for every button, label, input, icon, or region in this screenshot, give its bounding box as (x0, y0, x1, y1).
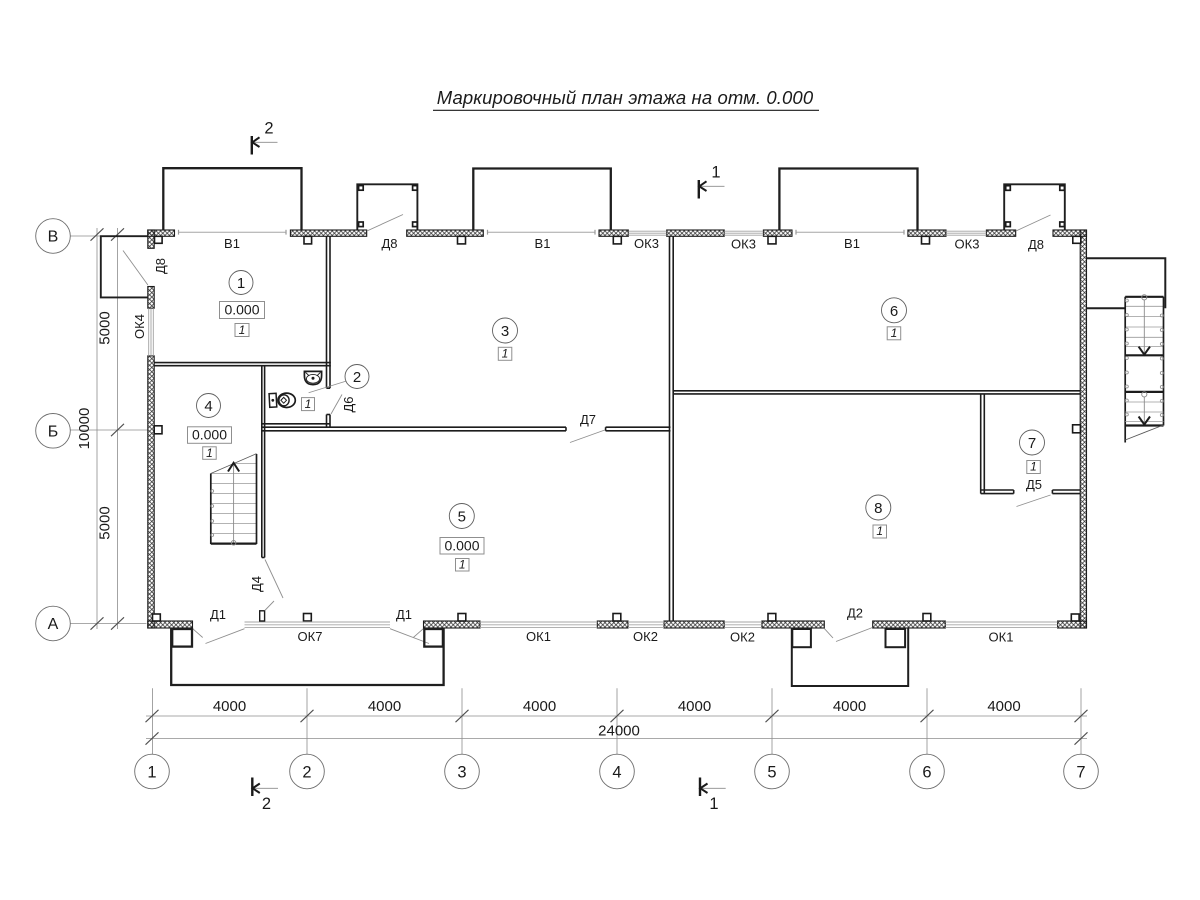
svg-text:7: 7 (1076, 763, 1085, 781)
svg-text:1: 1 (876, 524, 883, 538)
svg-text:В1: В1 (224, 236, 240, 251)
svg-text:Д8: Д8 (381, 236, 397, 251)
svg-text:Маркировочный план этажа на от: Маркировочный план этажа на отм. 0.000 (437, 87, 814, 108)
svg-text:6: 6 (922, 763, 931, 781)
svg-text:0.000: 0.000 (224, 302, 259, 318)
svg-text:Д8: Д8 (153, 258, 168, 274)
svg-text:7: 7 (1028, 435, 1036, 452)
svg-text:1: 1 (459, 558, 466, 572)
svg-text:2: 2 (353, 369, 361, 386)
svg-text:ОК1: ОК1 (989, 630, 1014, 645)
svg-text:ОК2: ОК2 (730, 630, 755, 645)
svg-text:1: 1 (206, 446, 213, 460)
svg-text:ОК3: ОК3 (731, 237, 756, 252)
svg-text:3: 3 (457, 763, 466, 781)
svg-text:1: 1 (891, 326, 898, 340)
svg-text:Д1: Д1 (396, 607, 412, 622)
svg-text:Д5: Д5 (1026, 477, 1042, 492)
svg-text:1: 1 (239, 323, 246, 337)
svg-text:ОК1: ОК1 (526, 629, 551, 644)
svg-text:2: 2 (262, 795, 271, 813)
svg-text:4000: 4000 (523, 698, 556, 715)
svg-text:Д2: Д2 (847, 606, 863, 621)
svg-text:Д6: Д6 (341, 396, 356, 412)
svg-text:ОК7: ОК7 (298, 629, 323, 644)
svg-text:2: 2 (302, 763, 311, 781)
svg-text:5: 5 (458, 509, 466, 526)
svg-text:ОК3: ОК3 (634, 236, 659, 251)
svg-text:8: 8 (874, 500, 882, 517)
svg-text:Д1: Д1 (210, 607, 226, 622)
svg-text:В: В (48, 229, 59, 246)
svg-text:1: 1 (147, 763, 156, 781)
svg-text:Д8: Д8 (1028, 237, 1044, 252)
svg-text:1: 1 (711, 164, 720, 182)
svg-text:10000: 10000 (76, 408, 93, 450)
svg-text:4000: 4000 (213, 698, 246, 715)
svg-text:3: 3 (501, 323, 509, 340)
svg-text:Б: Б (48, 424, 59, 441)
svg-text:А: А (48, 616, 59, 633)
svg-text:1: 1 (305, 397, 312, 411)
svg-text:4: 4 (204, 398, 212, 415)
svg-text:В1: В1 (535, 236, 551, 251)
svg-text:В1: В1 (844, 236, 860, 251)
svg-text:1: 1 (237, 275, 245, 292)
svg-text:5000: 5000 (97, 506, 114, 539)
svg-text:2: 2 (264, 120, 273, 138)
svg-text:4000: 4000 (987, 698, 1020, 715)
svg-text:0.000: 0.000 (192, 427, 227, 443)
svg-text:1: 1 (502, 347, 509, 361)
svg-text:24000: 24000 (598, 723, 640, 740)
svg-text:5000: 5000 (97, 311, 114, 344)
svg-text:Д4: Д4 (249, 576, 264, 592)
svg-text:1: 1 (1030, 460, 1037, 474)
svg-text:ОК2: ОК2 (633, 629, 658, 644)
svg-text:5: 5 (767, 763, 776, 781)
svg-text:ОК4: ОК4 (132, 314, 147, 339)
svg-text:4000: 4000 (368, 698, 401, 715)
svg-text:6: 6 (890, 303, 898, 320)
svg-text:0.000: 0.000 (444, 537, 479, 553)
svg-text:ОК3: ОК3 (955, 237, 980, 252)
svg-text:Д7: Д7 (580, 412, 596, 427)
svg-text:1: 1 (709, 795, 718, 813)
svg-text:4: 4 (612, 763, 621, 781)
svg-text:4000: 4000 (678, 698, 711, 715)
svg-text:4000: 4000 (833, 698, 866, 715)
